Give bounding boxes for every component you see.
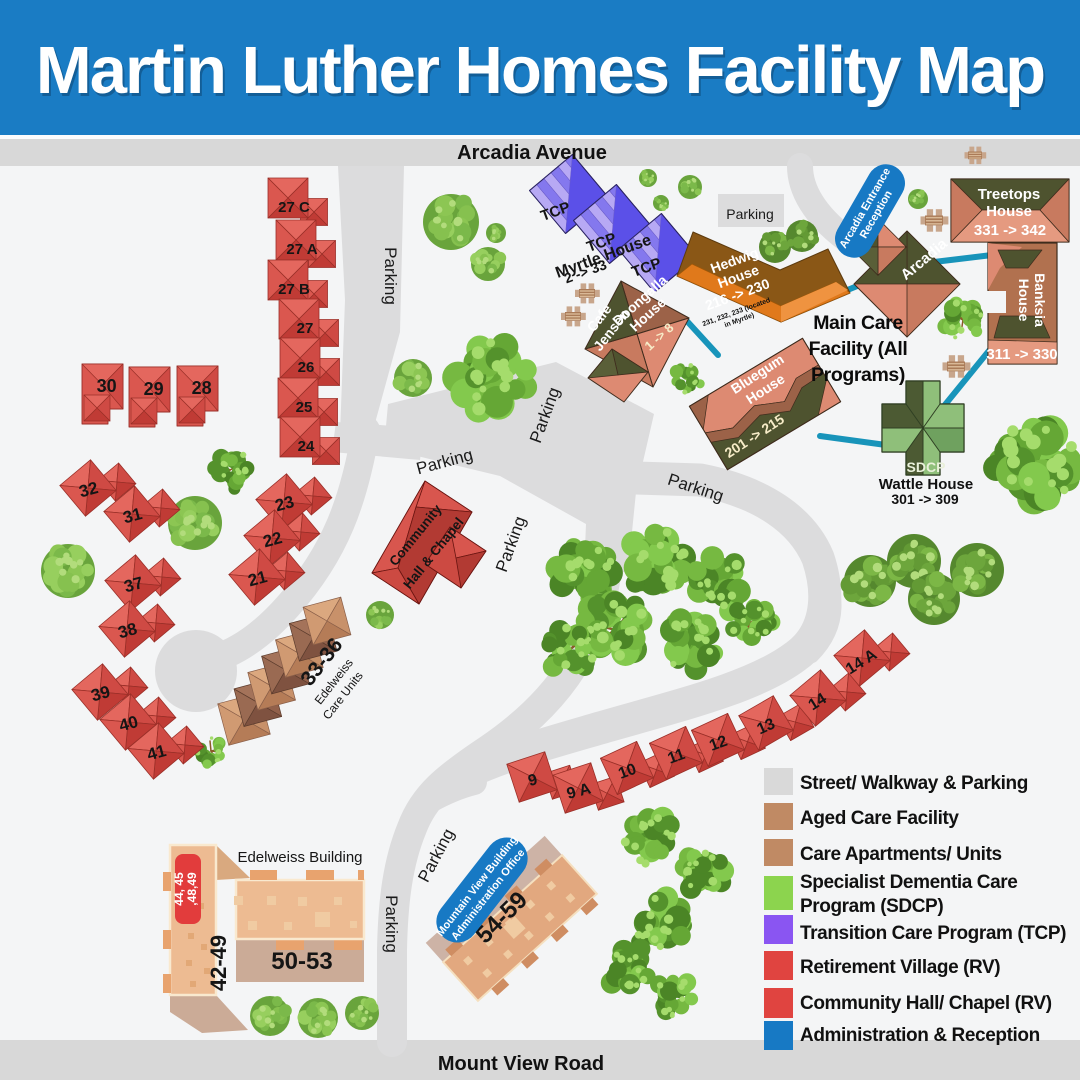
svg-text:House: House [1016, 279, 1032, 322]
svg-text:30: 30 [97, 376, 117, 396]
svg-text:Community Hall/ Chapel (RV): Community Hall/ Chapel (RV) [800, 993, 1052, 1014]
svg-text:Arcadia Avenue: Arcadia Avenue [457, 142, 607, 164]
svg-text:Main Care: Main Care [813, 312, 903, 334]
svg-text:,48,49: ,48,49 [185, 872, 199, 906]
svg-text:Treetops: Treetops [978, 186, 1041, 203]
svg-text:Parking: Parking [381, 247, 400, 305]
svg-text:Edelweiss Building: Edelweiss Building [237, 849, 362, 866]
svg-text:SDCP: SDCP [907, 459, 946, 475]
svg-text:25: 25 [296, 399, 313, 416]
svg-text:311 -> 330: 311 -> 330 [986, 346, 1057, 363]
svg-text:Martin Luther Homes Facility M: Martin Luther Homes Facility Map [36, 33, 1044, 108]
svg-text:27 B: 27 B [278, 281, 310, 298]
svg-text:Care Apartments/ Units: Care Apartments/ Units [800, 844, 1002, 865]
svg-text:44, 45: 44, 45 [172, 872, 186, 906]
svg-text:Specialist Dementia Care: Specialist Dementia Care [800, 872, 1017, 893]
svg-text:Banksia: Banksia [1032, 273, 1048, 327]
svg-text:27: 27 [297, 320, 314, 337]
svg-text:26: 26 [298, 359, 315, 376]
svg-text:24: 24 [298, 438, 315, 455]
svg-text:301 -> 309: 301 -> 309 [891, 491, 959, 507]
svg-text:50-53: 50-53 [271, 948, 332, 975]
svg-text:Aged Care Facility: Aged Care Facility [800, 808, 959, 829]
svg-text:Transition Care Program (TCP): Transition Care Program (TCP) [800, 923, 1066, 944]
svg-text:29: 29 [144, 379, 164, 399]
svg-text:28: 28 [192, 378, 212, 398]
svg-text:27 C: 27 C [278, 199, 310, 216]
svg-text:Parking: Parking [382, 895, 401, 953]
svg-text:Retirement Village (RV): Retirement Village (RV) [800, 957, 1000, 978]
svg-text:42-49: 42-49 [206, 935, 231, 991]
svg-text:Street/ Walkway & Parking: Street/ Walkway & Parking [800, 773, 1028, 794]
svg-text:Program (SDCP): Program (SDCP) [800, 896, 943, 917]
svg-text:Facility (All: Facility (All [809, 338, 908, 360]
svg-text:House: House [986, 203, 1032, 220]
svg-text:Parking: Parking [726, 206, 773, 222]
svg-text:Administration & Reception: Administration & Reception [800, 1025, 1040, 1046]
svg-text:Programs): Programs) [811, 364, 905, 386]
svg-text:331 -> 342: 331 -> 342 [974, 222, 1046, 239]
svg-text:27 A: 27 A [286, 241, 317, 258]
svg-text:Mount View Road: Mount View Road [438, 1053, 604, 1075]
